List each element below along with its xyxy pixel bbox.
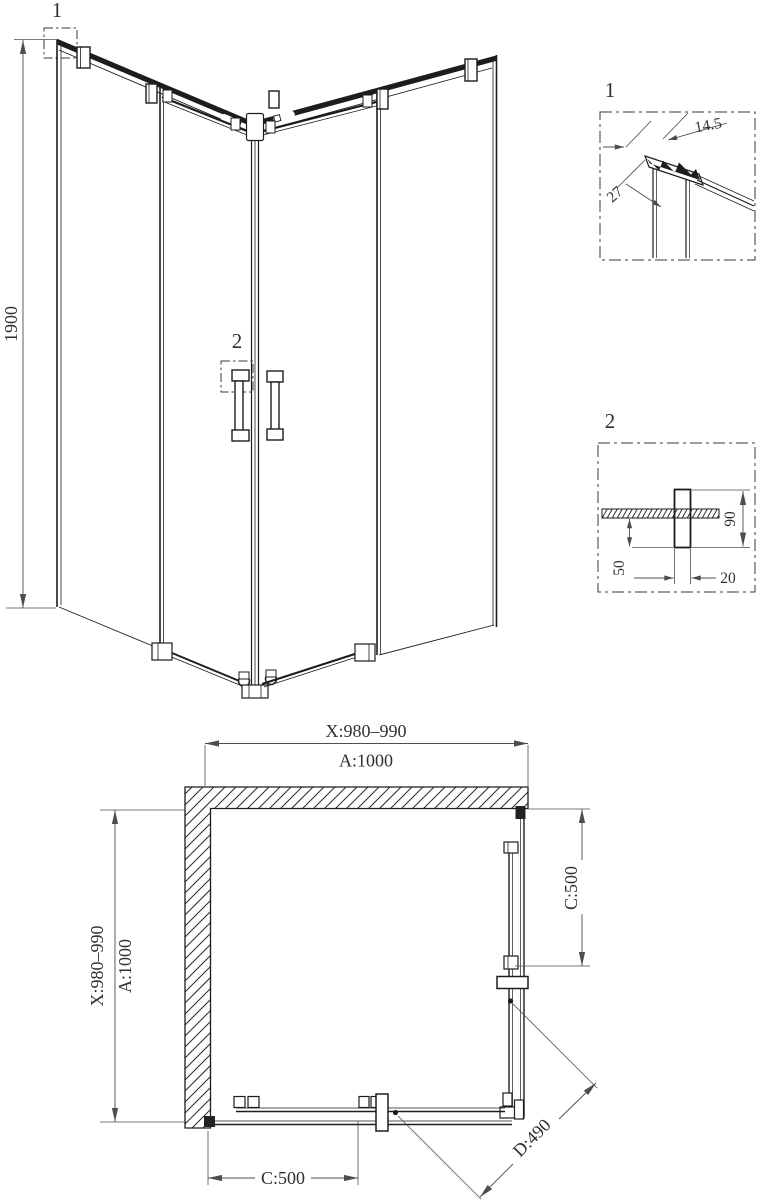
plan-view: X:980–990 A:1000 X:980–990 A:1000 C:500 …	[87, 721, 597, 1199]
height-dimension: 1900	[1, 40, 58, 609]
svg-text:50: 50	[611, 560, 628, 576]
svg-text:90: 90	[722, 511, 739, 527]
door-handles-3d	[232, 370, 283, 441]
wall-clamp	[204, 1116, 215, 1127]
svg-text:C:500: C:500	[261, 1168, 305, 1188]
top-rails	[57, 39, 496, 135]
svg-text:14.5: 14.5	[693, 115, 723, 136]
door-edge-marker	[393, 1110, 398, 1115]
shower-enclosure-drawing: 1900 1	[0, 0, 760, 1200]
detail-1-label: 1	[605, 78, 616, 102]
door-edge-marker	[508, 998, 513, 1003]
plan-left-dimension: X:980–990 A:1000	[87, 810, 186, 1122]
plan-right-assembly	[497, 806, 528, 1119]
svg-text:C:500: C:500	[561, 866, 581, 910]
svg-text:X:980–990: X:980–990	[87, 926, 107, 1007]
callout-2-label: 2	[232, 329, 243, 353]
technical-drawing-page: 1900 1	[0, 0, 760, 1200]
roller-block	[231, 118, 240, 130]
svg-text:X:980–990: X:980–990	[326, 721, 407, 741]
door-handle-plan	[497, 977, 528, 989]
roller-block	[163, 90, 172, 102]
plan-top-dimension: X:980–990 A:1000	[205, 721, 528, 786]
svg-text:D:490: D:490	[509, 1115, 555, 1161]
callout-1-label: 1	[52, 0, 63, 22]
detail-2-width-dim: 20	[634, 549, 736, 587]
plan-bottom-door-dimension: C:500	[208, 1121, 358, 1188]
roller-block	[266, 121, 275, 133]
corner-post	[247, 114, 264, 690]
left-wall-panels	[57, 40, 164, 649]
svg-text:20: 20	[720, 570, 736, 587]
plan-diagonal-dimension: D:490	[398, 1004, 597, 1199]
detail-2-label: 2	[605, 409, 616, 433]
detail-2-height-dim: 90	[692, 490, 750, 548]
height-dim-label: 1900	[1, 306, 21, 342]
svg-text:27: 27	[604, 183, 627, 206]
roller-block	[363, 95, 372, 107]
perspective-view: 1900 1	[1, 0, 497, 698]
svg-text:A:1000: A:1000	[115, 939, 135, 993]
door-handle-plan	[376, 1094, 388, 1131]
detail-1-top-rail-section: 1 14.5 27	[600, 78, 755, 260]
plan-right-door-dimension: C:500	[515, 809, 590, 966]
detail-1-width-dim: 14.5	[603, 113, 727, 147]
detail-2-offset-dim: 50	[611, 519, 673, 576]
svg-text:A:1000: A:1000	[339, 751, 393, 771]
right-wall-panels	[377, 55, 497, 655]
detail-2-handle-section: 2 90 50 20	[598, 409, 755, 592]
bottom-rails	[59, 607, 494, 698]
glass-section	[602, 509, 719, 518]
wall-section	[185, 787, 528, 1128]
